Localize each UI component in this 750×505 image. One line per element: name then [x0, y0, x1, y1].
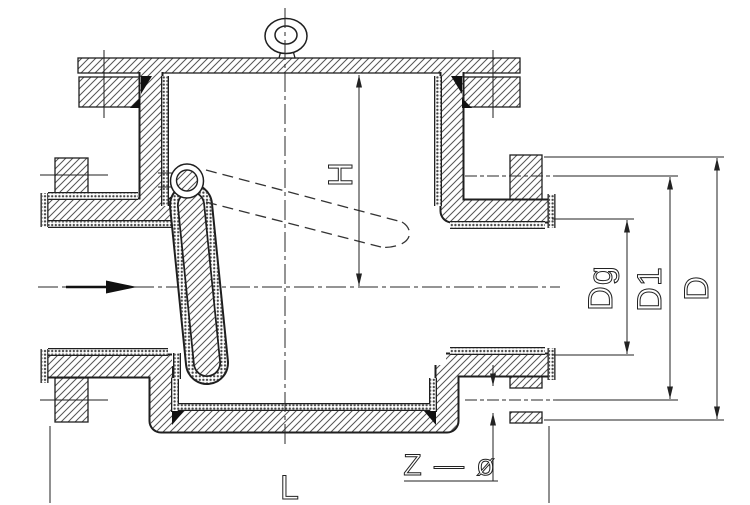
check-valve-section-drawing: H Dg D1 D Z — ø L: [0, 0, 750, 505]
valve-disc: [170, 197, 207, 363]
lifting-eye: [265, 19, 307, 59]
outlet-flange-bottom-lower: [510, 412, 542, 423]
label-Z-phi: Z — ø: [403, 449, 496, 482]
disc-open-position-outline: [206, 170, 410, 247]
valve-body-walls: [48, 72, 548, 421]
label-D1: D1: [631, 266, 669, 311]
label-D: D: [678, 275, 716, 301]
drawing-canvas: H Dg D1 D Z — ø L: [0, 0, 750, 505]
cover-plate: [78, 58, 520, 73]
label-Dg: Dg: [582, 265, 620, 310]
dimension-Dg: Dg: [552, 219, 634, 355]
label-H: H: [322, 161, 360, 187]
outlet-flange-top: [510, 155, 542, 205]
bonnet-flange-left: [79, 77, 140, 107]
bonnet-flange-right: [462, 77, 520, 107]
dimension-H: H: [322, 75, 360, 286]
flow-direction-arrow: [66, 281, 137, 294]
label-L: L: [280, 469, 300, 505]
